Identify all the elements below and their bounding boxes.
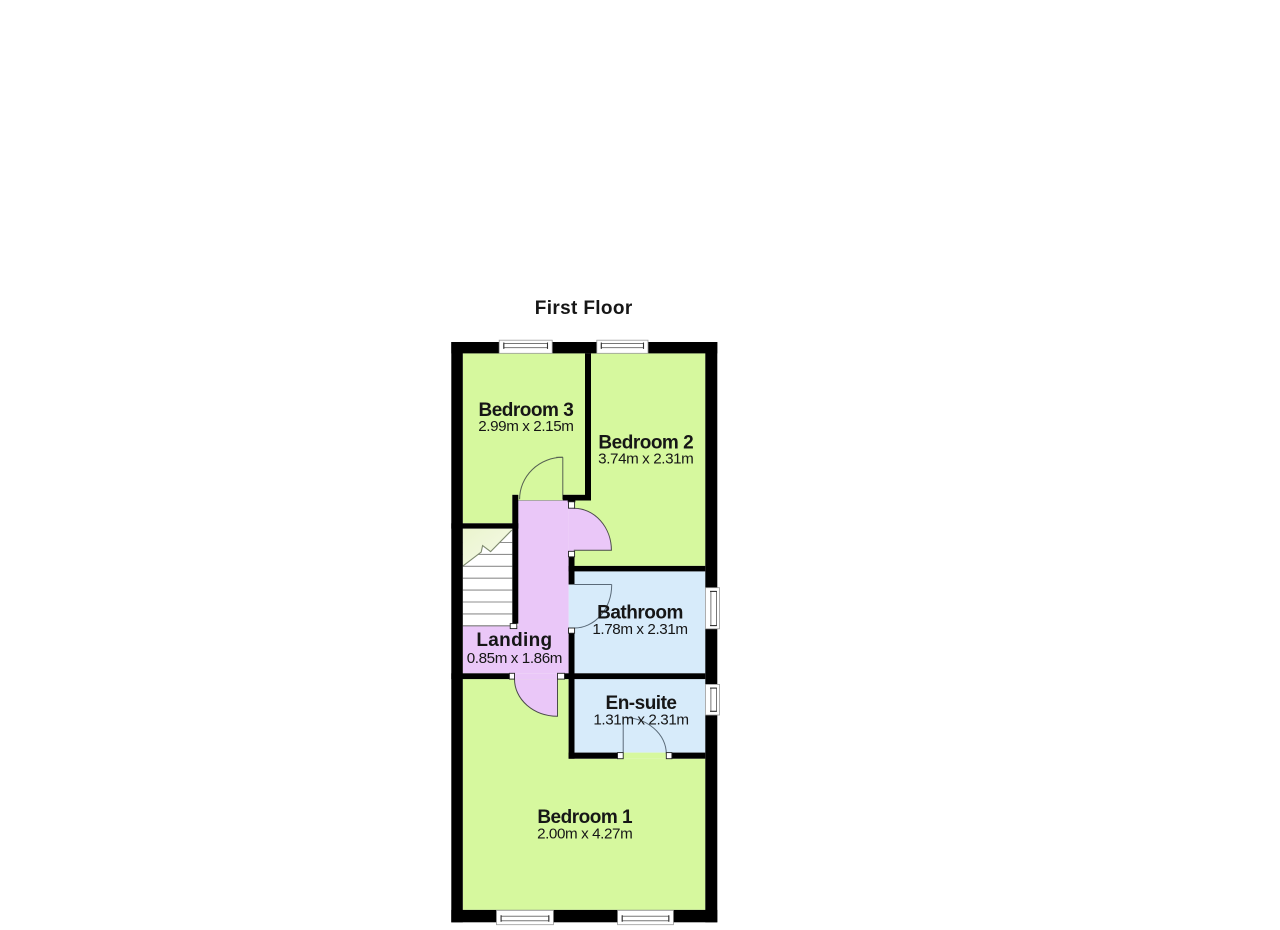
- svg-text:First Floor: First Floor: [535, 298, 633, 319]
- svg-text:1.78m x 2.31m: 1.78m x 2.31m: [592, 621, 687, 638]
- svg-text:Landing: Landing: [476, 630, 552, 651]
- svg-text:2.99m x 2.15m: 2.99m x 2.15m: [478, 418, 573, 435]
- svg-text:1.31m x 2.31m: 1.31m x 2.31m: [593, 711, 688, 728]
- svg-text:2.00m x 4.27m: 2.00m x 4.27m: [537, 826, 632, 843]
- svg-text:3.74m x 2.31m: 3.74m x 2.31m: [598, 450, 693, 467]
- svg-text:0.85m x 1.86m: 0.85m x 1.86m: [467, 650, 562, 667]
